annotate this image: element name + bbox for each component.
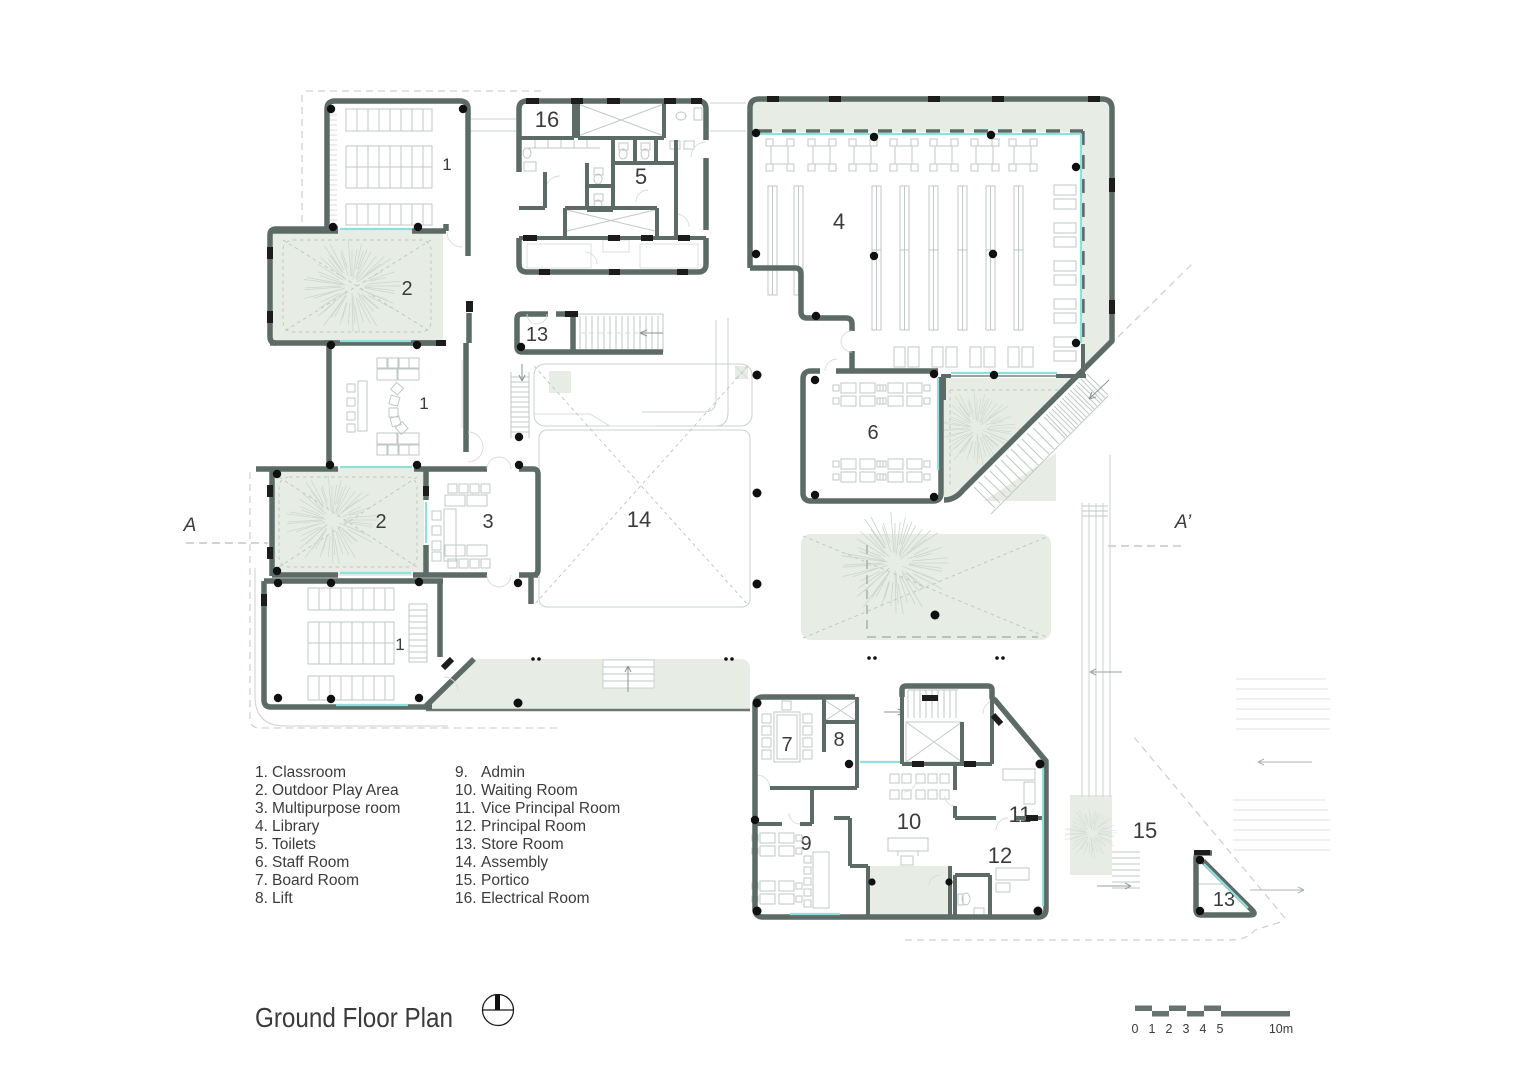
- svg-text:9.Admin: 9.Admin: [455, 764, 525, 781]
- svg-text:3: 3: [1183, 1022, 1190, 1036]
- svg-text:13: 13: [526, 324, 548, 346]
- svg-text:5.Toilets: 5.Toilets: [255, 836, 316, 853]
- svg-text:1: 1: [419, 394, 428, 413]
- svg-text:6: 6: [867, 422, 878, 444]
- svg-text:A: A: [183, 515, 197, 536]
- svg-text:7: 7: [781, 734, 792, 756]
- svg-text:16.Electrical Room: 16.Electrical Room: [455, 890, 590, 907]
- svg-text:1: 1: [442, 155, 451, 174]
- svg-text:3.Multipurpose room: 3.Multipurpose room: [255, 800, 400, 817]
- svg-text:1: 1: [1149, 1022, 1156, 1036]
- svg-text:2: 2: [401, 278, 412, 300]
- svg-text:10.Waiting Room: 10.Waiting Room: [455, 782, 578, 799]
- svg-text:2: 2: [1166, 1022, 1173, 1036]
- svg-text:3: 3: [482, 511, 493, 533]
- svg-text:15.Portico: 15.Portico: [455, 872, 529, 889]
- svg-text:16: 16: [535, 107, 559, 132]
- svg-text:10: 10: [897, 809, 921, 834]
- svg-text:Ground Floor Plan: Ground Floor Plan: [255, 1002, 453, 1033]
- svg-text:2: 2: [375, 511, 386, 533]
- svg-text:1: 1: [395, 635, 404, 654]
- svg-text:13.Store Room: 13.Store Room: [455, 836, 564, 853]
- svg-text:0: 0: [1132, 1022, 1139, 1036]
- svg-text:4: 4: [1200, 1022, 1207, 1036]
- svg-text:5: 5: [1217, 1022, 1224, 1036]
- svg-text:12: 12: [988, 843, 1012, 868]
- svg-text:8: 8: [833, 729, 844, 751]
- svg-text:14.Assembly: 14.Assembly: [455, 854, 548, 871]
- svg-text:11: 11: [1009, 802, 1032, 827]
- svg-text:8.Lift: 8.Lift: [255, 890, 293, 907]
- svg-text:10m: 10m: [1269, 1022, 1293, 1036]
- svg-text:5: 5: [635, 164, 647, 189]
- svg-text:4.Library: 4.Library: [255, 818, 320, 835]
- svg-text:4: 4: [833, 209, 845, 234]
- svg-text:15: 15: [1133, 818, 1157, 843]
- svg-text:A’: A’: [1174, 512, 1192, 533]
- svg-text:14: 14: [627, 507, 651, 532]
- svg-text:12.Principal Room: 12.Principal Room: [455, 818, 586, 835]
- svg-text:2.Outdoor Play Area: 2.Outdoor Play Area: [255, 782, 399, 799]
